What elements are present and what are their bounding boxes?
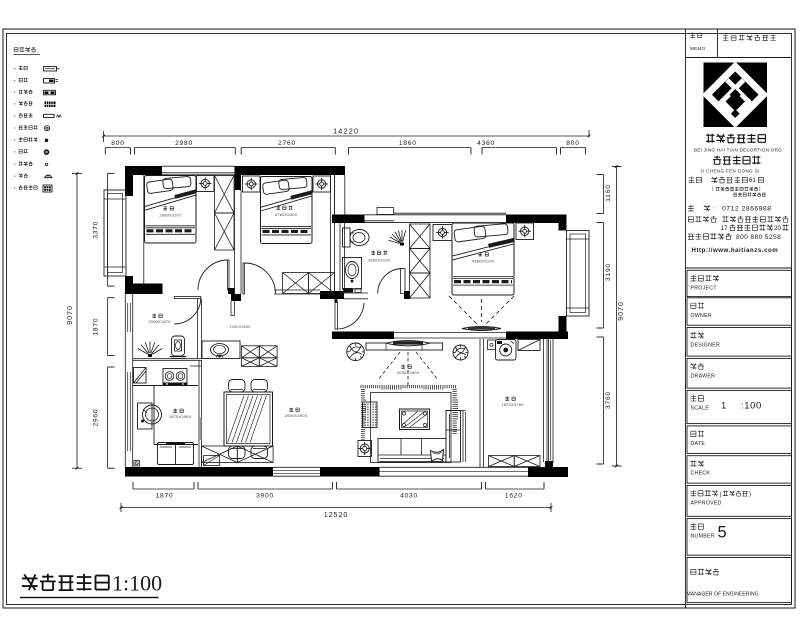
svg-text:0712 2866988: 0712 2866988 [722, 206, 771, 213]
svg-text:3190: 3190 [605, 263, 612, 281]
svg-text:1450X2600: 1450X2600 [229, 325, 250, 329]
svg-text:3370: 3370 [93, 221, 100, 239]
svg-text:9070: 9070 [616, 301, 625, 321]
svg-text:PROJECT: PROJECT [691, 285, 718, 291]
svg-text:14220: 14220 [333, 127, 359, 136]
svg-text:2980: 2980 [175, 140, 193, 147]
svg-text:): ) [749, 492, 751, 498]
svg-text:3900: 3900 [256, 493, 274, 500]
svg-text:BEI JING HAI TIAN DECORTION OR: BEI JING HAI TIAN DECORTION ORG [694, 147, 782, 152]
svg-text:1: 1 [721, 401, 726, 412]
svg-text:NUMBER: NUMBER [691, 534, 715, 540]
svg-text:12520: 12520 [324, 510, 349, 519]
svg-text:17: 17 [721, 225, 729, 232]
svg-text:2760X3300: 2760X3300 [275, 212, 298, 217]
svg-text:2000X1870: 2000X1870 [148, 319, 171, 324]
svg-text:5: 5 [718, 524, 727, 542]
svg-text:1:100: 1:100 [112, 571, 162, 596]
svg-text:4360: 4360 [477, 140, 495, 147]
svg-text:APPROVED: APPROVED [691, 500, 722, 506]
svg-text::: : [37, 49, 38, 55]
svg-text::: : [713, 206, 715, 213]
svg-text:OWNER: OWNER [691, 313, 712, 319]
svg-text:61: 61 [749, 177, 757, 184]
svg-text:2960: 2960 [93, 409, 100, 427]
svg-text:CHECK: CHECK [691, 471, 711, 477]
svg-text:1870: 1870 [93, 318, 100, 336]
svg-text:800: 800 [111, 140, 124, 147]
svg-text:1870: 1870 [156, 493, 174, 500]
svg-text:Http://www.haitianzs.com: Http://www.haitianzs.com [692, 247, 779, 254]
svg-text:3760: 3760 [605, 391, 612, 409]
svg-text:2600X3900: 2600X3900 [285, 413, 308, 418]
svg-text:MANAGER OF ENGINEERING: MANAGER OF ENGINEERING [687, 592, 759, 598]
svg-text:1620X3760: 1620X3760 [501, 402, 524, 407]
svg-text:20: 20 [774, 225, 782, 232]
svg-text::100: :100 [741, 401, 762, 412]
svg-text:1620: 1620 [505, 493, 523, 500]
svg-text:DRAWER: DRAWER [691, 373, 716, 379]
svg-text:1860: 1860 [399, 140, 417, 147]
svg-text:800 880 5258: 800 880 5258 [736, 234, 781, 241]
svg-text:SCALE: SCALE [691, 405, 710, 411]
svg-text:1860X3190: 1860X3190 [368, 258, 391, 263]
svg-text:DESIGNER: DESIGNER [691, 343, 721, 349]
svg-text:2760: 2760 [278, 140, 296, 147]
svg-text:4360X3190: 4360X3190 [472, 259, 495, 264]
svg-text:9070: 9070 [65, 305, 74, 325]
svg-text:4030X3900: 4030X3900 [397, 370, 420, 375]
svg-text:DATE: DATE [691, 441, 706, 447]
svg-text:2980X3370: 2980X3370 [159, 213, 182, 218]
svg-text:1160: 1160 [605, 184, 612, 201]
svg-text:4030: 4030 [400, 493, 418, 500]
svg-text:MEMO: MEMO [690, 46, 706, 51]
svg-text:800: 800 [566, 140, 579, 147]
svg-text:(: ( [720, 492, 722, 498]
svg-text:1870X2960: 1870X2960 [169, 414, 192, 419]
svg-text:JI CHENG FEN GONG SI: JI CHENG FEN GONG SI [700, 169, 760, 174]
